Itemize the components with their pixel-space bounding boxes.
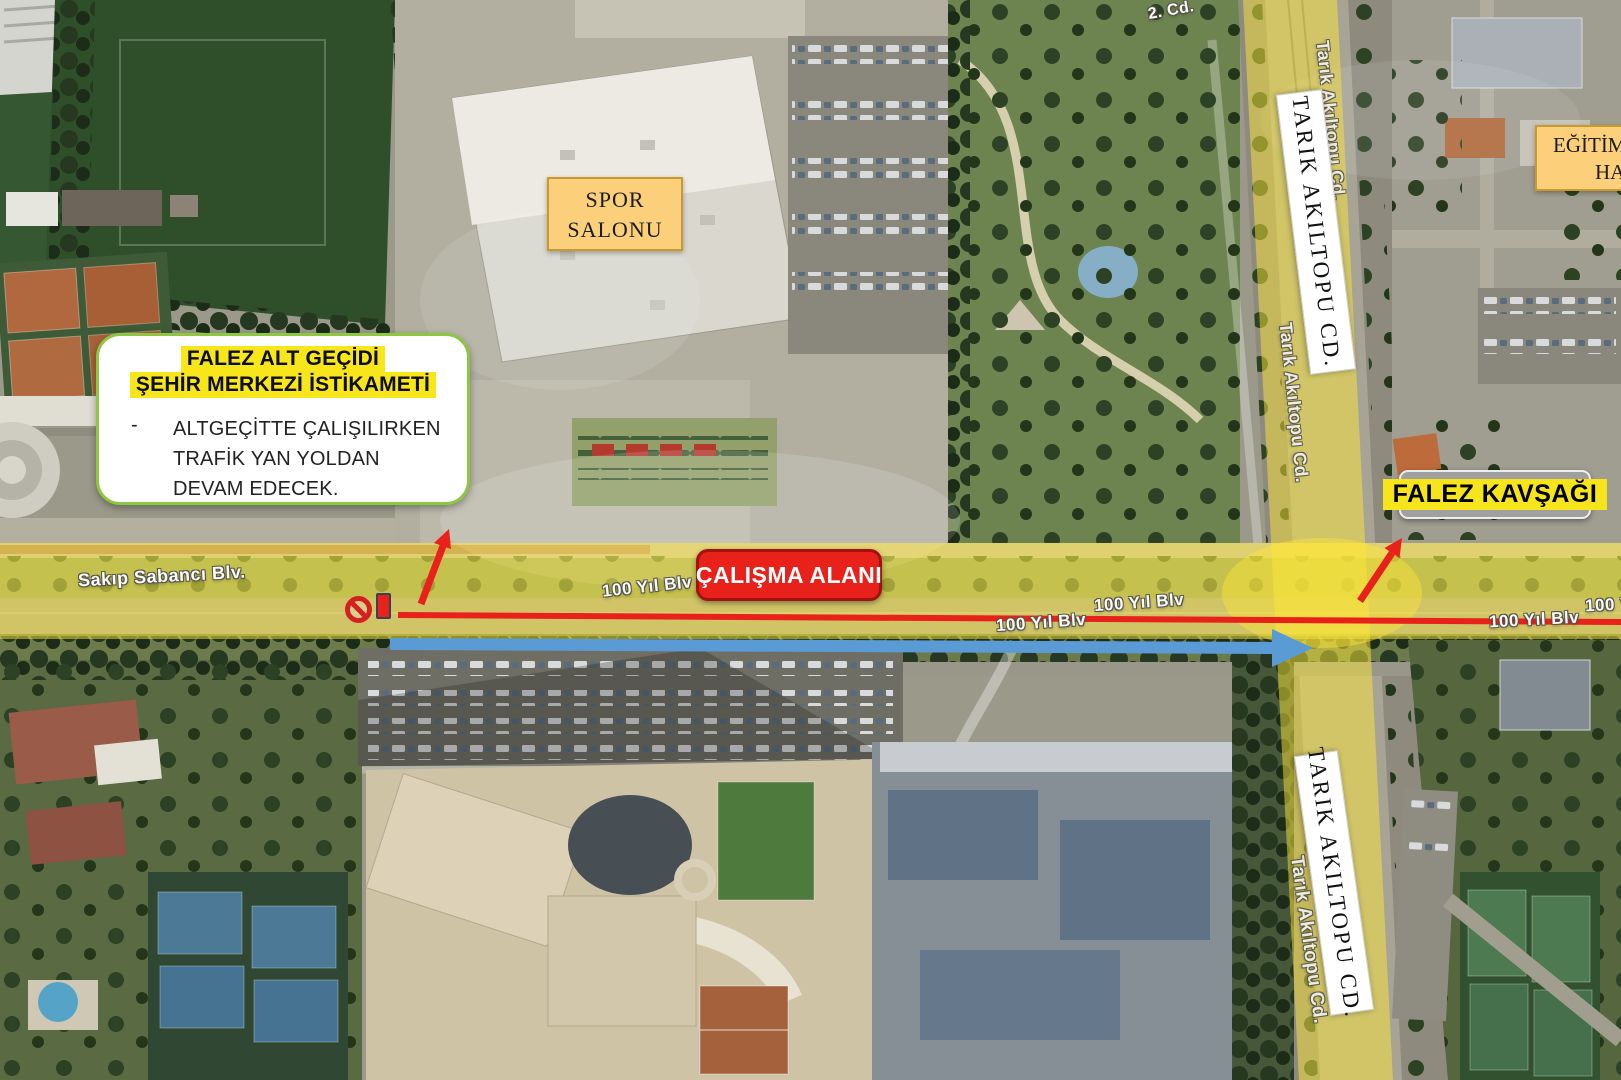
no-entry-slash xyxy=(350,601,368,619)
zone-bottom-left xyxy=(0,640,362,1080)
spor-salonu-label: SPOR SALONU xyxy=(547,177,683,251)
spor-salonu-line1: SPOR xyxy=(585,187,644,212)
callout-title: FALEZ ALT GEÇİDİ ŞEHİR MERKEZİ İSTİKAMET… xyxy=(99,346,467,398)
zone-park xyxy=(948,0,1258,545)
falez-kavsagi-text: FALEZ KAVŞAĞI xyxy=(1383,479,1608,510)
callout-bullet: - ALTGEÇİTTE ÇALIŞILIRKEN TRAFİK YAN YOL… xyxy=(99,414,467,504)
callout-bullet-dash: - xyxy=(131,414,173,504)
spor-salonu-line2: SALONU xyxy=(567,217,662,242)
satellite-map-background xyxy=(0,0,1621,1080)
egitim-label: EĞİTİM HA xyxy=(1535,125,1621,191)
egitim-line1: EĞİTİM xyxy=(1537,132,1621,159)
road-closure-block xyxy=(376,593,391,619)
road-label-100yil-5: 100 Yıl Blv xyxy=(1585,592,1621,617)
info-callout: FALEZ ALT GEÇİDİ ŞEHİR MERKEZİ İSTİKAMET… xyxy=(96,333,470,505)
callout-bullet-text: ALTGEÇİTTE ÇALIŞILIRKEN TRAFİK YAN YOLDA… xyxy=(173,414,445,504)
falez-kavsagi-label: FALEZ KAVŞAĞI xyxy=(1399,470,1591,519)
no-entry-icon xyxy=(345,596,372,623)
zone-bottom-right xyxy=(1392,640,1621,1080)
zone-parking-top xyxy=(788,36,963,354)
egitim-line2: HA xyxy=(1537,159,1621,186)
callout-title-line1: FALEZ ALT GEÇİDİ xyxy=(181,346,385,372)
calisma-alani-label: ÇALIŞMA ALANI xyxy=(696,549,882,601)
callout-title-line2: ŞEHİR MERKEZİ İSTİKAMETİ xyxy=(130,372,436,398)
traffic-plan-map: Sakıp Sabancı Blv. 100 Yıl Blv 100 Yıl B… xyxy=(0,0,1621,1080)
